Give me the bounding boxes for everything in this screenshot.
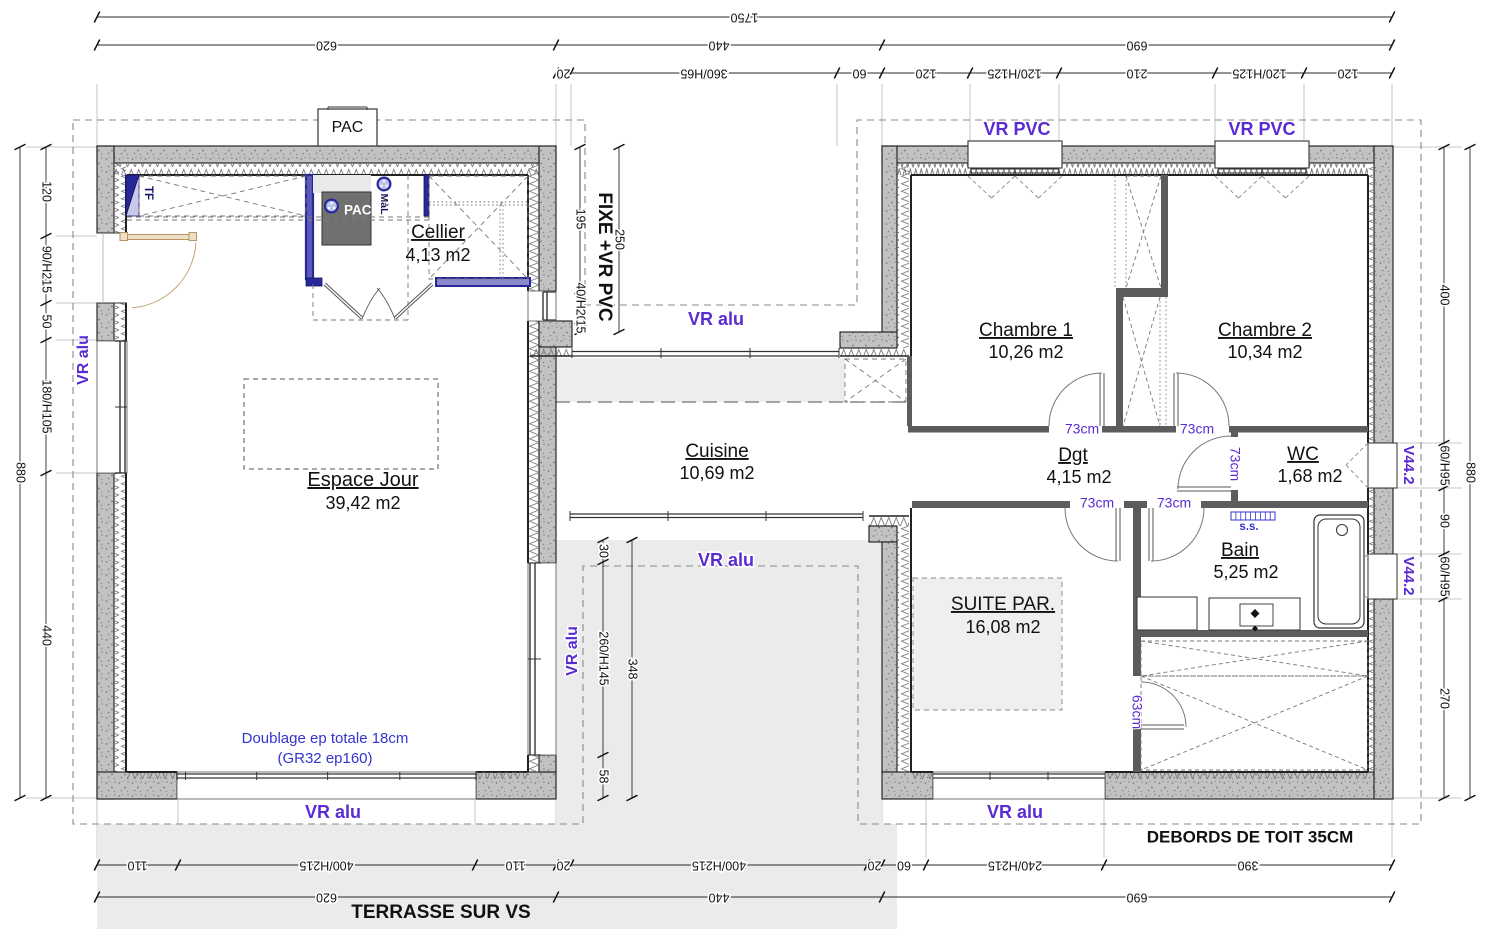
svg-text:360/H65: 360/H65	[680, 67, 727, 81]
svg-text:250: 250	[613, 229, 627, 250]
svg-text:PAC: PAC	[332, 119, 364, 136]
svg-text:SUITE PAR.: SUITE PAR.	[951, 594, 1055, 615]
svg-text:440: 440	[709, 891, 730, 905]
svg-text:400/H215: 400/H215	[692, 859, 746, 873]
svg-text:10,26 m2: 10,26 m2	[988, 342, 1063, 362]
svg-text:VR alu: VR alu	[564, 626, 581, 676]
svg-text:690: 690	[1127, 891, 1148, 905]
svg-text:120/H125: 120/H125	[987, 67, 1041, 81]
svg-text:348: 348	[626, 659, 640, 680]
svg-text:VR alu: VR alu	[688, 309, 744, 329]
svg-text:39,42 m2: 39,42 m2	[325, 493, 400, 513]
svg-text:Bain: Bain	[1221, 540, 1259, 561]
svg-text:620: 620	[316, 891, 337, 905]
svg-text:60: 60	[897, 859, 911, 873]
svg-text:VR alu: VR alu	[75, 335, 92, 385]
svg-text:4,15 m2: 4,15 m2	[1046, 467, 1111, 487]
svg-text:15: 15	[574, 320, 588, 334]
svg-text:120: 120	[916, 67, 937, 81]
svg-text:440: 440	[40, 625, 54, 646]
svg-text:63cm: 63cm	[1129, 695, 1145, 729]
svg-text:73cm: 73cm	[1080, 495, 1114, 511]
svg-text:73cm: 73cm	[1180, 421, 1214, 437]
svg-text:PAC: PAC	[344, 203, 372, 218]
svg-text:110: 110	[127, 859, 147, 873]
svg-text:620: 620	[316, 39, 337, 53]
svg-text:Cellier: Cellier	[411, 222, 466, 243]
svg-text:60/H95: 60/H95	[1438, 445, 1452, 485]
svg-text:270: 270	[1438, 688, 1452, 709]
svg-text:4,13 m2: 4,13 m2	[405, 245, 470, 265]
svg-text:400/H215: 400/H215	[299, 859, 353, 873]
svg-text:90: 90	[1438, 514, 1452, 528]
svg-text:MàL: MàL	[378, 194, 390, 216]
svg-text:20: 20	[868, 859, 882, 873]
svg-text:195: 195	[574, 209, 588, 230]
svg-text:FIXE +VR PVC: FIXE +VR PVC	[594, 192, 615, 322]
svg-text:V44.2: V44.2	[1400, 445, 1417, 484]
svg-text:50: 50	[40, 315, 54, 329]
svg-text:20: 20	[557, 859, 571, 873]
svg-text:VR alu: VR alu	[987, 802, 1043, 822]
svg-text:690: 690	[1127, 39, 1148, 53]
svg-text:Doublage ep totale 18cm: Doublage ep totale 18cm	[242, 730, 409, 747]
svg-text:DEBORDS DE TOIT 35CM: DEBORDS DE TOIT 35CM	[1147, 827, 1354, 846]
svg-text:VR alu: VR alu	[305, 802, 361, 822]
svg-text:(GR32 ep160): (GR32 ep160)	[277, 750, 372, 767]
svg-text:1,68 m2: 1,68 m2	[1277, 466, 1342, 486]
svg-text:880: 880	[1464, 462, 1478, 483]
svg-text:60/H95: 60/H95	[1438, 556, 1452, 596]
svg-text:58: 58	[597, 770, 611, 784]
svg-text:10,34 m2: 10,34 m2	[1227, 342, 1302, 362]
svg-text:73cm: 73cm	[1227, 447, 1243, 481]
svg-text:Chambre 1: Chambre 1	[979, 320, 1073, 341]
svg-text:WC: WC	[1287, 444, 1319, 465]
svg-text:30: 30	[597, 544, 611, 558]
svg-text:Dgt: Dgt	[1058, 445, 1088, 466]
svg-text:1750: 1750	[731, 11, 759, 25]
svg-text:240/H215: 240/H215	[988, 859, 1042, 873]
svg-text:120/H125: 120/H125	[1232, 67, 1286, 81]
svg-text:73cm: 73cm	[1065, 421, 1099, 437]
svg-text:VR PVC: VR PVC	[1228, 119, 1295, 139]
svg-text:s.s.: s.s.	[1239, 521, 1258, 533]
svg-text:260/H145: 260/H145	[597, 631, 611, 685]
svg-text:440: 440	[709, 39, 730, 53]
svg-text:V44.2: V44.2	[1400, 556, 1417, 595]
svg-text:400: 400	[1438, 285, 1452, 306]
svg-text:110: 110	[505, 859, 525, 873]
svg-text:210: 210	[1127, 67, 1148, 81]
svg-text:Cuisine: Cuisine	[685, 441, 748, 462]
svg-text:390: 390	[1238, 859, 1259, 873]
svg-text:880: 880	[14, 462, 28, 483]
svg-text:90/H215: 90/H215	[40, 246, 54, 293]
svg-text:VR alu: VR alu	[698, 550, 754, 570]
svg-text:180/H105: 180/H105	[40, 379, 54, 433]
svg-text:16,08 m2: 16,08 m2	[965, 617, 1040, 637]
svg-text:73cm: 73cm	[1157, 495, 1191, 511]
svg-text:60: 60	[853, 67, 867, 81]
svg-text:120: 120	[1338, 67, 1359, 81]
svg-text:10,69 m2: 10,69 m2	[679, 463, 754, 483]
svg-text:TERRASSE SUR VS: TERRASSE SUR VS	[351, 902, 530, 923]
svg-text:20: 20	[557, 67, 571, 81]
svg-text:Chambre 2: Chambre 2	[1218, 320, 1312, 341]
svg-text:TF: TF	[142, 186, 154, 200]
svg-text:120: 120	[40, 181, 54, 202]
svg-text:VR PVC: VR PVC	[983, 119, 1050, 139]
svg-text:5,25 m2: 5,25 m2	[1213, 562, 1278, 582]
svg-text:Espace Jour: Espace Jour	[307, 469, 419, 491]
